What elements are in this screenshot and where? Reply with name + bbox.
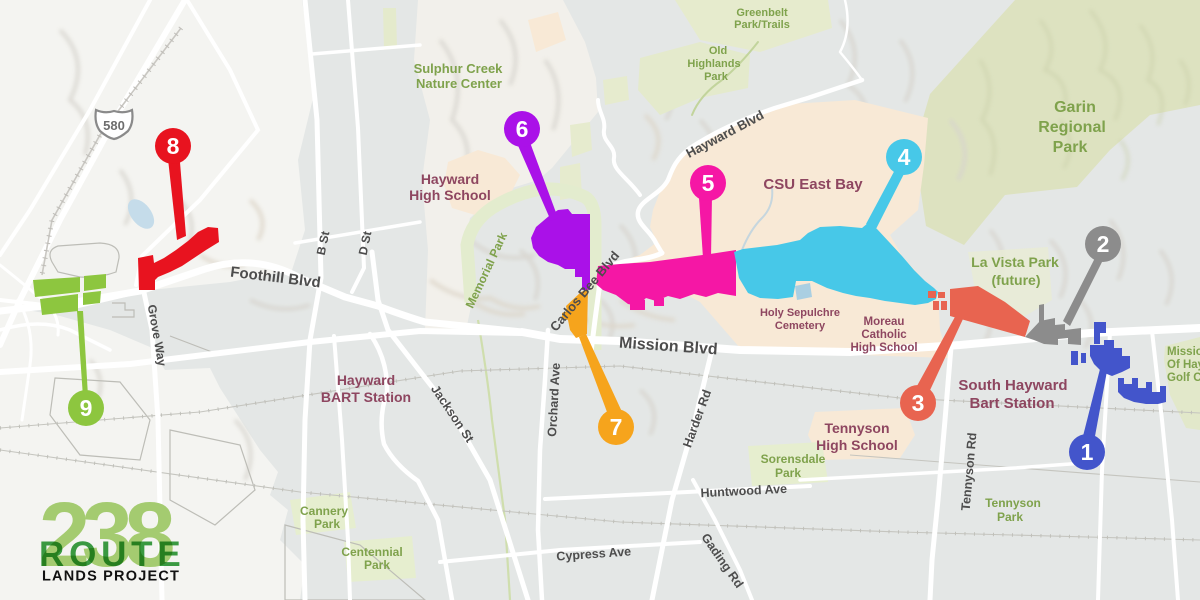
svg-text:BART Station: BART Station bbox=[321, 389, 411, 405]
svg-text:Cemetery: Cemetery bbox=[775, 320, 826, 332]
svg-text:Tennyson: Tennyson bbox=[824, 420, 889, 436]
svg-text:Hayward: Hayward bbox=[337, 372, 395, 388]
svg-text:Park: Park bbox=[997, 510, 1023, 524]
svg-text:Bart Station: Bart Station bbox=[969, 395, 1054, 412]
svg-text:Greenbelt: Greenbelt bbox=[736, 7, 788, 19]
svg-text:1: 1 bbox=[1081, 439, 1094, 465]
svg-text:580: 580 bbox=[103, 118, 125, 133]
svg-text:Park: Park bbox=[704, 71, 729, 83]
svg-text:High School: High School bbox=[850, 342, 917, 354]
svg-text:6: 6 bbox=[516, 116, 529, 142]
svg-text:Centennial: Centennial bbox=[341, 545, 402, 559]
svg-text:Garin: Garin bbox=[1054, 99, 1096, 116]
svg-text:Sulphur Creek: Sulphur Creek bbox=[414, 61, 504, 76]
svg-text:Golf C: Golf C bbox=[1167, 372, 1200, 384]
svg-text:Cannery: Cannery bbox=[300, 504, 348, 518]
svg-text:5: 5 bbox=[702, 170, 715, 196]
svg-text:7: 7 bbox=[610, 414, 623, 440]
svg-text:8: 8 bbox=[167, 133, 180, 159]
svg-text:Regional: Regional bbox=[1038, 119, 1106, 136]
svg-text:3: 3 bbox=[912, 390, 925, 416]
svg-text:Park/Trails: Park/Trails bbox=[734, 19, 790, 31]
svg-text:La Vista Park: La Vista Park bbox=[971, 254, 1059, 270]
svg-text:(future): (future) bbox=[992, 272, 1041, 288]
svg-text:Nature Center: Nature Center bbox=[416, 76, 502, 91]
svg-text:Missio: Missio bbox=[1167, 346, 1200, 358]
svg-text:Moreau: Moreau bbox=[864, 316, 905, 328]
svg-text:LANDS PROJECT: LANDS PROJECT bbox=[42, 569, 180, 585]
svg-text:9: 9 bbox=[80, 395, 93, 421]
svg-text:Park: Park bbox=[775, 466, 801, 480]
svg-text:2: 2 bbox=[1097, 231, 1110, 257]
svg-text:Hayward: Hayward bbox=[421, 171, 479, 187]
svg-text:Catholic: Catholic bbox=[861, 329, 907, 341]
svg-text:Of Hay: Of Hay bbox=[1167, 359, 1200, 371]
svg-text:Highlands: Highlands bbox=[687, 58, 740, 70]
svg-text:High School: High School bbox=[816, 437, 898, 453]
svg-text:South Hayward: South Hayward bbox=[958, 377, 1067, 394]
svg-text:Park: Park bbox=[1053, 139, 1088, 156]
svg-text:High School: High School bbox=[409, 187, 491, 203]
svg-text:4: 4 bbox=[898, 144, 911, 170]
svg-text:Old: Old bbox=[709, 45, 727, 57]
svg-text:Park: Park bbox=[314, 517, 340, 531]
svg-text:Park: Park bbox=[364, 558, 390, 572]
svg-text:CSU East Bay: CSU East Bay bbox=[763, 176, 863, 193]
svg-text:Sorensdale: Sorensdale bbox=[761, 452, 826, 466]
svg-text:Holy Sepulchre: Holy Sepulchre bbox=[760, 307, 840, 319]
svg-text:Tennyson: Tennyson bbox=[985, 496, 1041, 510]
